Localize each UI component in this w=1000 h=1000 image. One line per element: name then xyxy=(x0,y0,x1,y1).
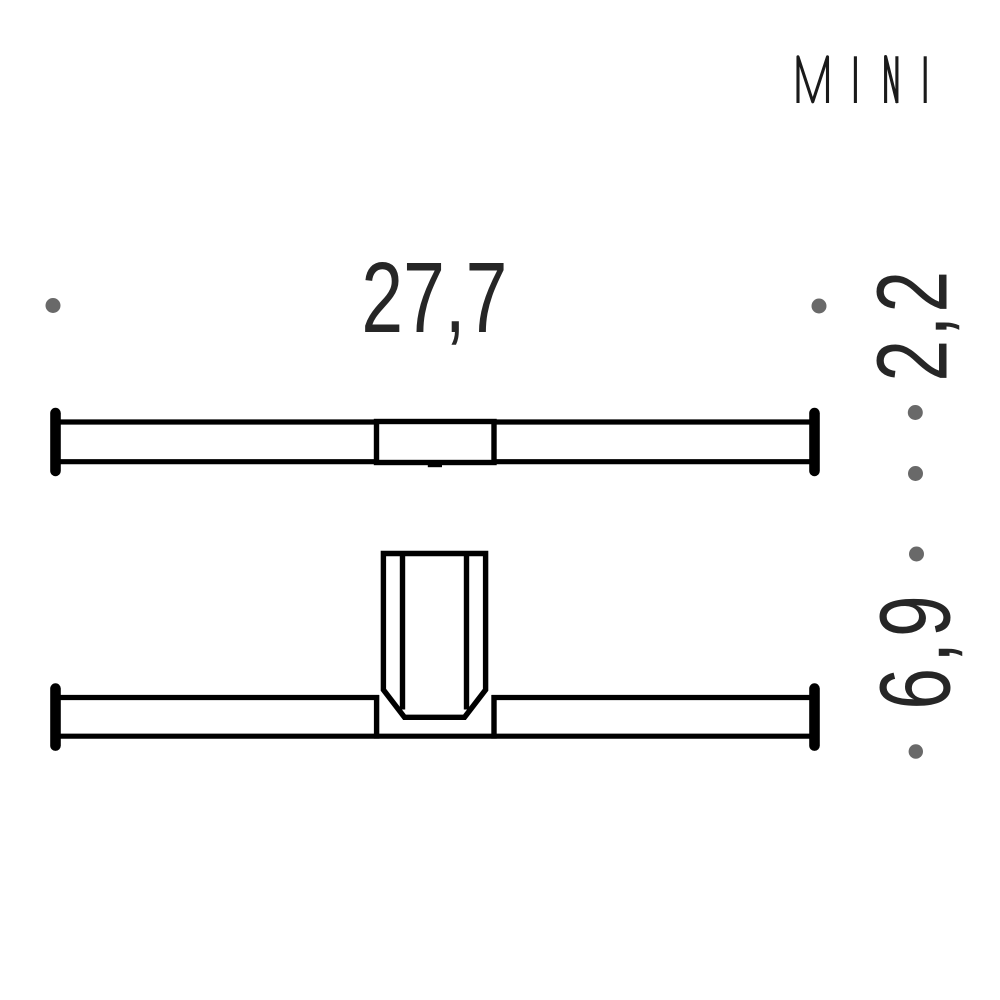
svg-text:2,2: 2,2 xyxy=(856,268,968,382)
svg-text:27,7: 27,7 xyxy=(361,241,507,353)
svg-text:6,9: 6,9 xyxy=(859,590,971,709)
